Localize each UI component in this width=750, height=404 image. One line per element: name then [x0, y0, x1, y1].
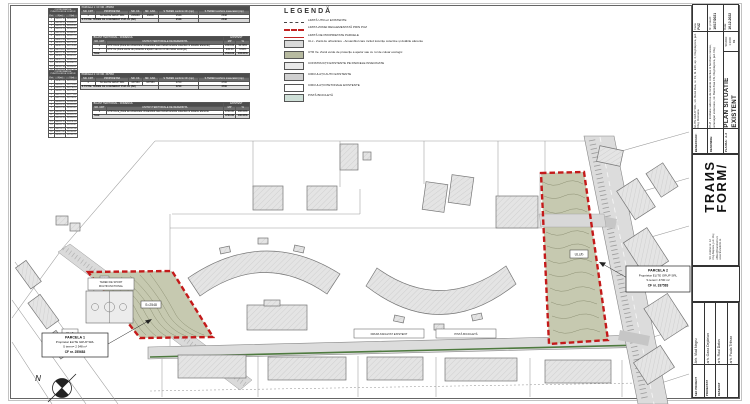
data-cell: Data: 16.12.2022	[724, 5, 738, 31]
proiect-cell: Nr. proiect: 16/17/2021	[708, 5, 722, 31]
beneficiar-value: ELITE GRUP SRL, str. Bună Ziua, nr. 19, …	[693, 31, 707, 129]
cell: 586238.52	[54, 21, 66, 24]
cell: 392736.20	[66, 86, 78, 89]
signature-row: SEF PROIECT Arh. Vlad Negru	[693, 303, 705, 397]
crossing-path	[539, 214, 606, 227]
cell: 586200.44	[54, 134, 66, 137]
cell: 392859.19	[66, 110, 78, 113]
parcel-1-owner: Proprietar ELITE GRUP SRL	[56, 340, 95, 344]
territorial-balance-table-1: BILANT TERITORIAL - DOMENIUL EXISTENT NR…	[92, 36, 250, 56]
parcel-2-title: PARCELA 2	[648, 269, 668, 273]
cell: 392628.11	[66, 21, 78, 24]
cell: 586239.83	[54, 114, 66, 117]
signature-row: arh. Paula Trifean	[728, 303, 739, 397]
proiect-value: 16/17/2021	[713, 13, 717, 30]
cell: 586279.22	[54, 93, 66, 96]
legend-item-label: LIMITĂ DE PROPRIETATE PARCELE	[308, 34, 424, 38]
cell: 586233.26	[54, 117, 66, 120]
cell: 392894.33	[66, 117, 78, 120]
parcel-2-cf: CF nr. 337583	[648, 283, 669, 287]
cell: 586149.80	[54, 62, 66, 65]
rev-value: 01	[732, 40, 736, 43]
cell: 392801.97	[66, 55, 78, 58]
cell: 392784.61	[66, 52, 78, 55]
legend: LEGENDĂ LIMITĂ UTR-uri EXISTENTELIMITA Z…	[284, 8, 434, 105]
cell: 586207.00	[54, 131, 66, 134]
table-row: 17586200.44392982.18	[49, 134, 78, 137]
parcel-1-table: PARCELA 1: CF NR. 255683 NR. CRT PROPRIE…	[80, 6, 250, 23]
legend-item: CIRCULAȚII AUTO EXISTENTE	[284, 73, 434, 81]
legend-item: ULc - Zonă de urbanizare - Ansamblul car…	[284, 40, 434, 48]
parcel-1-area-tag: S=2548	[145, 303, 157, 307]
cell: 586194.53	[54, 41, 66, 44]
legend-item-label: LIMITĂ UTR-uri EXISTENTE	[308, 19, 424, 23]
firm-address: Str. Colinei nr. 12 Cluj-Napoca, jud. Cl…	[709, 218, 723, 260]
legend-item: LIMITĂ DE PROPRIETATE PARCELE	[284, 34, 434, 38]
cell: 392854.07	[66, 65, 78, 68]
plansa-value: A-3	[724, 133, 728, 138]
street-label-2: PISTĂ BICICLETĂ	[454, 332, 477, 336]
plan-title: PLAN SITUATIE EXISTENT	[724, 51, 738, 128]
cell: 586187.07	[54, 45, 66, 48]
cell: 392697.78	[66, 35, 78, 38]
parcel-2-area-tag: ULc/b	[575, 253, 584, 257]
parcel-1-area-text: S teren= 2 548 m²	[63, 345, 87, 349]
table-title: COORDONATELE PUNCTELOR DE CONTUR	[49, 9, 78, 15]
curved-building-north	[188, 251, 340, 296]
legend-item: CONSTRUCȚII EXISTENTE PE PARCELE INVECIN…	[284, 62, 434, 70]
parcel-2-table: PARCELA 2: CF NR. 337583 NR. CRT PROPRIE…	[80, 73, 250, 90]
puz-zone-limit-line	[284, 29, 304, 31]
parcel-2-area-text: S teren= 4700 m²	[646, 278, 669, 282]
faza-cell: Faza: PUZ	[693, 5, 707, 31]
pedestrian-circulation-swatch	[284, 84, 304, 92]
titleblock-row-beneficiar: BENEFICIAR: ELITE GRUP SRL, str. Bună Zi…	[693, 5, 708, 153]
legend-item: LIMITA ZONEI REGLEMENTATĂ PRIN PUZ	[284, 26, 434, 31]
cell: 586201.98	[54, 38, 66, 41]
cell: 586231.76	[54, 24, 66, 27]
cell: 586179.62	[54, 48, 66, 51]
sef-proiect-name: Arh. Vlad Negru	[693, 303, 704, 364]
cell: 586157.25	[54, 58, 66, 61]
legend-item-label: CIRCULAȚII PIETONALE EXISTENTE	[308, 84, 424, 88]
ulc-zone-swatch	[284, 40, 304, 48]
court-label-2: MULTIFUNCTIONAL	[99, 284, 124, 288]
cell: 586164.71	[54, 55, 66, 58]
cell: 586220.13	[54, 124, 66, 127]
cell: 392680.42	[66, 31, 78, 34]
legend-item-label: CIRCULAȚII AUTO EXISTENTE	[308, 73, 424, 77]
cell: 392610.44	[66, 18, 78, 21]
territorial-balance-table-2: BILANT TERITORIAL - DOMENIUL EXISTENT NR…	[92, 102, 250, 119]
legend-item-label: CONSTRUCȚII EXISTENTE PE PARCELE INVECIN…	[308, 62, 424, 66]
legend-items: LIMITĂ UTR-uri EXISTENTELIMITA ZONEI REG…	[284, 19, 434, 102]
plan-sheet: S=2548 ULc/b	[0, 0, 750, 404]
cell: 586142.34	[54, 65, 66, 68]
cell: 586252.96	[54, 107, 66, 110]
denumire-value: PUZ - Instituire subzona de locuinte col…	[708, 31, 722, 129]
legend-item: CIRCULAȚII PIETONALE EXISTENTE	[284, 84, 434, 92]
faza-value: PUZ	[697, 23, 701, 30]
sport-court: TEREN DE SPORT MULTIFUNCTIONAL	[86, 278, 134, 323]
cell: 586216.90	[54, 31, 66, 34]
cell: 392819.34	[66, 58, 78, 61]
titleblock-logo: Str. Colinei nr. 12 Cluj-Napoca, jud. Cl…	[692, 154, 739, 266]
cell: 586272.65	[54, 97, 66, 100]
titleblock-info: BENEFICIAR: ELITE GRUP SRL, str. Bună Zi…	[692, 4, 739, 154]
legend-item: PISTĂ BICICLETĂ	[284, 94, 434, 102]
desenat-label: DESENAT	[716, 364, 727, 397]
cell: 392876.76	[66, 114, 78, 117]
court-label-1: TEREN DE SPORT	[100, 280, 123, 284]
cell: 392788.91	[66, 97, 78, 100]
plansa-label: PLANSA:	[724, 139, 728, 152]
cell: 392911.90	[66, 120, 78, 123]
desenat-name: arh. Raul Datos	[716, 303, 727, 364]
cell: 586298.91	[54, 83, 66, 86]
cell: 392836.70	[66, 62, 78, 65]
cell: 586226.70	[54, 120, 66, 123]
coordinates-table-parcel-1: COORDONATELE PUNCTELOR DE CONTUR Pct. X …	[48, 8, 78, 76]
titleblock-row-denumire: DENUMIRE: PUZ - Instituire subzona de lo…	[708, 5, 723, 153]
north-arrow: N	[35, 374, 76, 402]
cell: 586285.78	[54, 90, 66, 93]
denumire-label: DENUMIRE:	[708, 128, 722, 153]
cell: 392663.05	[66, 28, 78, 31]
cell: 586213.57	[54, 127, 66, 130]
cell: 586266.09	[54, 100, 66, 103]
cell: 392806.48	[66, 100, 78, 103]
cell: 392715.15	[66, 38, 78, 41]
desenat2-label	[728, 364, 739, 397]
proiectat-name: arh. Oana Dejdeian	[705, 303, 716, 364]
cell: 586292.35	[54, 86, 66, 89]
cell: 392964.61	[66, 131, 78, 134]
cell: 392929.47	[66, 124, 78, 127]
titleblock-row-plansa: PLANSA: A-3 PLAN SITUATIE EXISTENT SCARA…	[724, 5, 738, 153]
sef-proiect-label: SEF PROIECT	[693, 364, 704, 397]
titleblock-empty-box	[692, 266, 740, 302]
existing-buildings-swatch	[284, 62, 304, 70]
cell: 392645.89	[66, 24, 78, 27]
cell: 586246.39	[54, 110, 66, 113]
cell: 392982.18	[66, 134, 78, 137]
transform-logo: TRAИS FORM/	[704, 160, 728, 212]
table-title: COORDONATELE PUNCTELOR DE CONTUR	[49, 71, 78, 77]
cell: UTR ULca_Zona de urbanizare. Ansamblul c…	[106, 110, 223, 114]
cell: 392718.63	[66, 83, 78, 86]
signature-row: DESENAT arh. Raul Datos	[716, 303, 728, 397]
legend-title: LEGENDĂ	[284, 8, 434, 15]
property-limit-line	[284, 37, 304, 38]
signature-row: PROIECTAT arh. Oana Dejdeian	[705, 303, 717, 397]
legend-item-label: ULc - Zonă de urbanizare - Ansamblul car…	[308, 40, 424, 44]
proiectat-label: PROIECTAT	[705, 364, 716, 397]
scara-cell: SCARA: 1:1000 01	[724, 31, 738, 52]
cell: 392841.62	[66, 107, 78, 110]
bike-lane-swatch	[284, 94, 304, 102]
legend-item: LIMITĂ UTR-uri EXISTENTE	[284, 19, 434, 23]
parcel-1-cf: CF nr. 255683	[65, 350, 86, 354]
cell: 392947.04	[66, 127, 78, 130]
cell: 586224.31	[54, 28, 66, 31]
utr-ve-swatch	[284, 51, 304, 59]
auto-circulation-swatch	[284, 73, 304, 81]
cell: 586241.18	[54, 18, 66, 21]
plansa-cell: PLANSA: A-3	[724, 128, 738, 153]
coordinates-table-parcel-2: COORDONATELE PUNCTELOR DE CONTUR Pct. X …	[48, 70, 78, 138]
legend-item-label: PISTĂ BICICLETĂ	[308, 94, 424, 98]
cell: 392753.77	[66, 90, 78, 93]
desenat2-name: arh. Paula Trifean	[728, 303, 739, 364]
cell: 392732.51	[66, 41, 78, 44]
parcel-2-owner: Proprietar ELITE GRUP SRL	[639, 273, 678, 277]
data-value: 16.12.2022	[728, 13, 732, 30]
cell: 392701.12	[66, 80, 78, 83]
legend-item-label: UTR Ve. Zonă verde de protecție a apelor…	[308, 51, 424, 55]
cell: 392767.24	[66, 48, 78, 51]
titleblock-signatures: SEF PROIECT Arh. Vlad Negru PROIECTAT ar…	[692, 302, 739, 398]
utr-limit-line	[284, 22, 304, 23]
north-label: N	[35, 374, 41, 383]
cell: 392824.05	[66, 103, 78, 106]
cell: 586259.52	[54, 103, 66, 106]
cell: 586172.16	[54, 52, 66, 55]
cell: 392749.88	[66, 45, 78, 48]
beneficiar-label: BENEFICIAR:	[693, 128, 707, 153]
cell: 586302.44	[54, 80, 66, 83]
cell: 392771.34	[66, 93, 78, 96]
curved-building-south	[366, 266, 516, 315]
cell: 586209.44	[54, 35, 66, 38]
legend-item: UTR Ve. Zonă verde de protecție a apelor…	[284, 51, 434, 59]
legend-item-label: LIMITA ZONEI REGLEMENTATĂ PRIN PUZ	[308, 26, 424, 30]
parcel-1-title: PARCELA 1	[65, 335, 85, 339]
street-label-1: DRUM ASFALTAT EXISTENT	[371, 332, 408, 336]
